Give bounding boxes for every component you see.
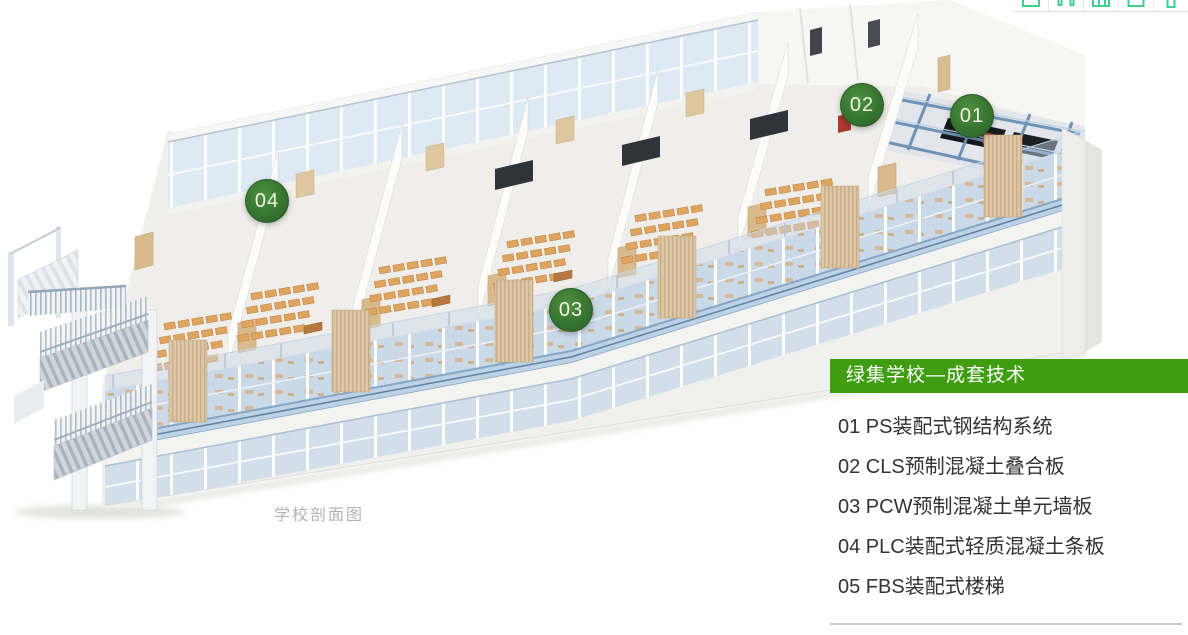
marker-03[interactable]: 03 <box>549 288 593 332</box>
tech-item-2: 02 CLS预制混凝土叠合板 <box>838 447 1188 487</box>
marker-01[interactable]: 01 <box>950 94 994 138</box>
marker-04[interactable]: 04 <box>245 179 289 223</box>
panel-divider <box>830 623 1182 625</box>
panel-title: 绿集学校—成套技术 <box>830 359 1188 393</box>
marker-02[interactable]: 02 <box>840 83 884 127</box>
phone-icon[interactable] <box>1153 0 1188 11</box>
mail-icon[interactable] <box>1118 0 1153 11</box>
building-caption: 学校剖面图 <box>274 501 364 525</box>
contacts-icon[interactable] <box>1048 0 1083 11</box>
tech-item-3: 03 PCW预制混凝土单元墙板 <box>838 487 1188 527</box>
tech-item-4: 04 PLC装配式轻质混凝土条板 <box>838 527 1188 567</box>
grid-icon[interactable] <box>1083 0 1118 11</box>
tech-item-5: 05 FBS装配式楼梯 <box>838 567 1188 607</box>
tech-item-1: 01 PS装配式钢结构系统 <box>838 407 1188 447</box>
page: 01 02 03 04 学校剖面图 绿集学校—成套技术 01 PS装配式钢结构系… <box>0 0 1188 635</box>
monitor-icon[interactable] <box>1014 0 1048 11</box>
top-toolbar <box>1014 0 1188 12</box>
